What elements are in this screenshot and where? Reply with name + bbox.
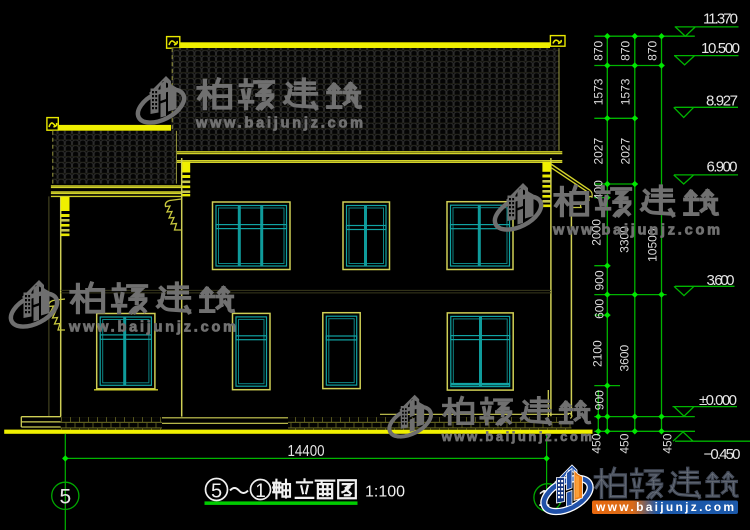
svg-text:11.370: 11.370	[703, 11, 738, 28]
svg-text:1573: 1573	[619, 78, 633, 105]
svg-text:900: 900	[593, 270, 607, 290]
svg-text:14400: 14400	[288, 443, 325, 460]
svg-text:6.900: 6.900	[707, 158, 738, 175]
svg-text:±0.000: ±0.000	[699, 392, 737, 409]
svg-text:450: 450	[618, 433, 632, 453]
svg-text:870: 870	[645, 40, 659, 60]
svg-text:600: 600	[593, 299, 607, 319]
svg-text:5: 5	[59, 486, 71, 509]
svg-text:1: 1	[255, 481, 266, 502]
svg-text:870: 870	[592, 40, 606, 60]
svg-text:3600: 3600	[618, 345, 632, 372]
svg-text:2027: 2027	[619, 138, 633, 165]
svg-text:2027: 2027	[592, 138, 606, 165]
svg-text:10.500: 10.500	[701, 40, 740, 57]
svg-text:1:100: 1:100	[365, 484, 405, 501]
svg-text:900: 900	[593, 390, 607, 410]
svg-text:−0.450: −0.450	[704, 446, 741, 463]
svg-text:2100: 2100	[591, 340, 605, 367]
svg-text:5: 5	[211, 481, 222, 503]
svg-text:3.600: 3.600	[707, 272, 735, 289]
svg-text:450: 450	[660, 433, 674, 453]
svg-text:1573: 1573	[592, 78, 606, 105]
svg-text:8.927: 8.927	[706, 92, 738, 109]
svg-text:870: 870	[619, 40, 633, 60]
